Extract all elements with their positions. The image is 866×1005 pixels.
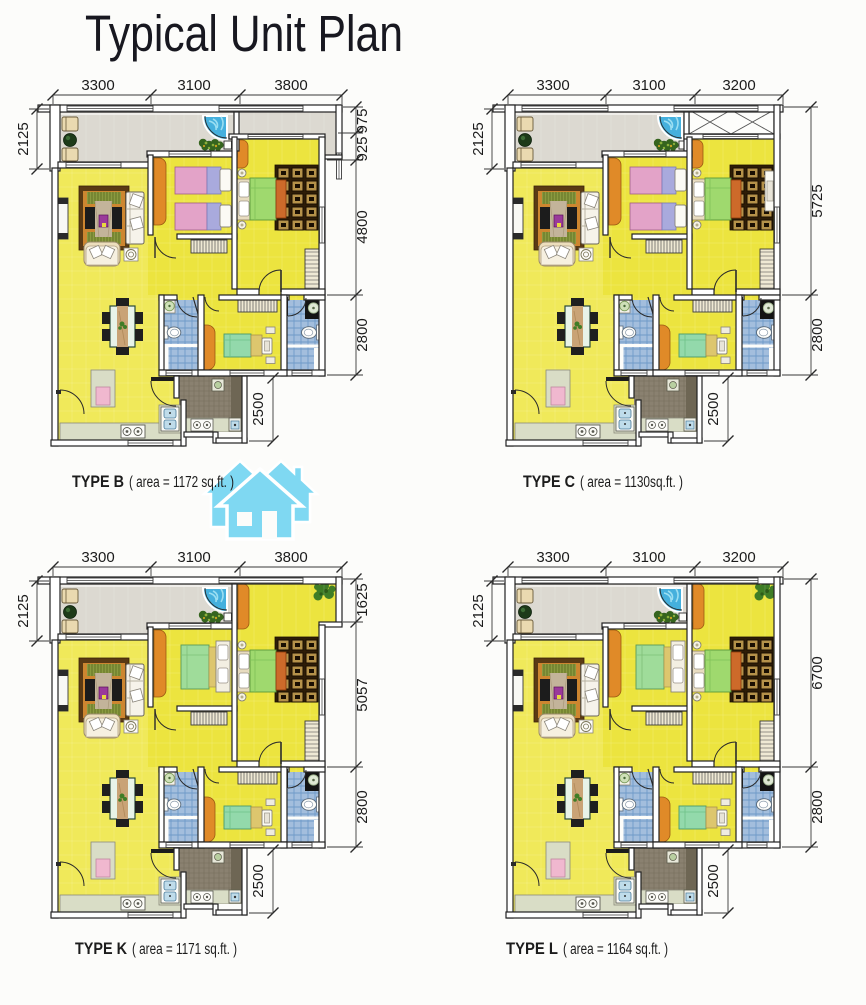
svg-text:5057: 5057 [354, 678, 371, 711]
svg-text:3800: 3800 [274, 549, 307, 566]
svg-text:TYPE K: TYPE K [75, 940, 127, 958]
svg-text:3100: 3100 [177, 549, 210, 566]
svg-text:TYPE C: TYPE C [523, 473, 575, 491]
svg-text:4800: 4800 [354, 210, 371, 243]
svg-text:2500: 2500 [250, 864, 267, 897]
svg-text:5725: 5725 [809, 184, 826, 217]
svg-text:3300: 3300 [81, 549, 114, 566]
svg-text:2800: 2800 [354, 318, 371, 351]
svg-text:2125: 2125 [470, 122, 487, 155]
svg-text:3100: 3100 [177, 77, 210, 94]
svg-text:3300: 3300 [536, 77, 569, 94]
svg-text:( area = 1164 sq.ft. ): ( area = 1164 sq.ft. ) [563, 941, 668, 958]
svg-text:( area = 1130sq.ft. ): ( area = 1130sq.ft. ) [580, 474, 683, 491]
svg-text:3300: 3300 [536, 549, 569, 566]
svg-text:3200: 3200 [722, 549, 755, 566]
svg-text:Typical Unit Plan: Typical Unit Plan [85, 5, 403, 62]
svg-text:2800: 2800 [809, 318, 826, 351]
svg-text:3100: 3100 [632, 549, 665, 566]
svg-text:3200: 3200 [722, 77, 755, 94]
svg-text:2125: 2125 [15, 122, 32, 155]
svg-text:TYPE L: TYPE L [506, 940, 558, 958]
svg-text:3300: 3300 [81, 77, 114, 94]
svg-text:1625: 1625 [354, 583, 371, 616]
svg-text:3800: 3800 [274, 77, 307, 94]
svg-text:2500: 2500 [705, 392, 722, 425]
svg-text:2800: 2800 [354, 790, 371, 823]
svg-text:2500: 2500 [250, 392, 267, 425]
svg-text:2125: 2125 [470, 594, 487, 627]
svg-text:3100: 3100 [632, 77, 665, 94]
svg-text:( area = 1171 sq.ft. ): ( area = 1171 sq.ft. ) [132, 941, 237, 958]
svg-text:( area = 1172 sq.ft. ): ( area = 1172 sq.ft. ) [129, 474, 234, 491]
svg-text:925: 925 [354, 136, 371, 161]
svg-text:6700: 6700 [809, 656, 826, 689]
svg-text:2500: 2500 [705, 864, 722, 897]
svg-text:2125: 2125 [15, 594, 32, 627]
svg-text:975: 975 [354, 108, 371, 133]
svg-text:TYPE B: TYPE B [72, 473, 124, 491]
svg-text:2800: 2800 [809, 790, 826, 823]
